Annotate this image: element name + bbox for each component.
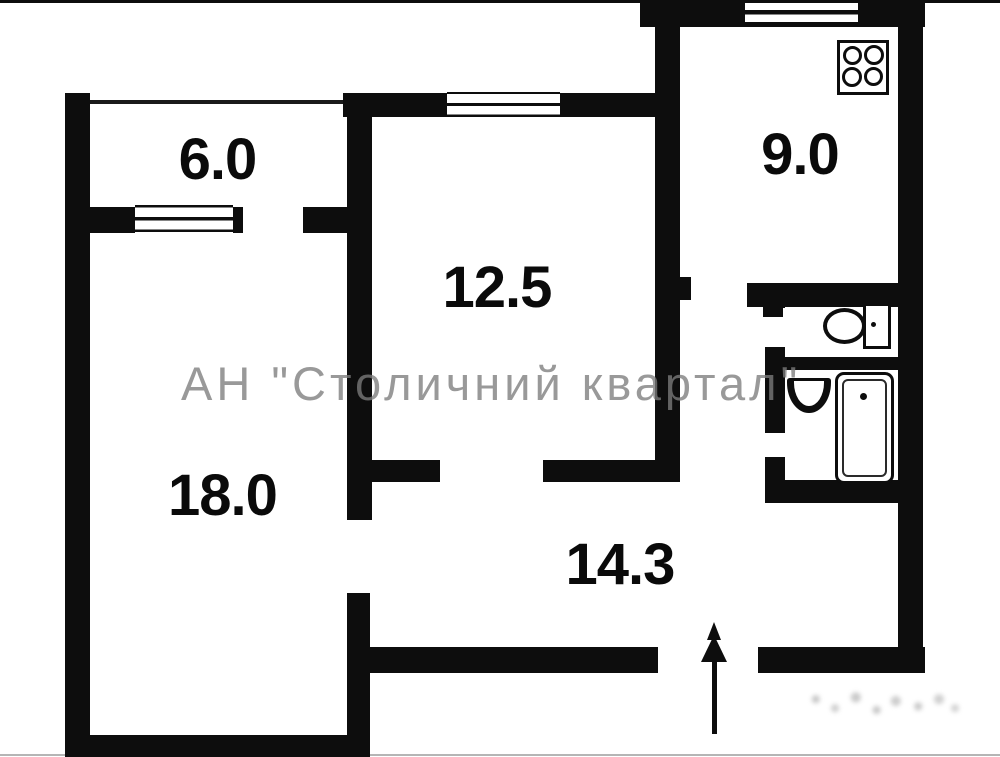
balcony-window-icon xyxy=(135,205,233,232)
wall-top-right-of-window xyxy=(560,93,667,117)
room-label-balcony: 6.0 xyxy=(150,131,285,189)
bathtub-icon xyxy=(835,372,894,484)
wall-balcony-bottom-left xyxy=(90,207,135,233)
agency-watermark: АН "Столичний квартал" xyxy=(181,360,841,407)
wall-kitchen-door-stub xyxy=(678,277,691,300)
floor-plan: 6.0 18.0 12.5 9.0 14.3 АН "Столичний ква… xyxy=(0,0,1000,757)
stove-icon xyxy=(837,40,889,95)
entrance-arrow xyxy=(698,622,730,734)
balcony-railing xyxy=(90,100,347,104)
wall-top-left-of-window xyxy=(343,93,447,117)
wall-balcony-bottom-mid xyxy=(233,207,243,233)
illegible-watermark xyxy=(803,683,963,719)
room-label-kitchen: 9.0 xyxy=(730,126,870,184)
kitchen-balcony-door-icon xyxy=(745,3,858,22)
room-label-bedroom: 12.5 xyxy=(402,259,592,317)
wall-hall-bottom-right xyxy=(758,647,925,673)
wall-center-vertical-lower xyxy=(347,593,370,757)
wall-bath-left-corner xyxy=(765,457,785,503)
wall-left-outer xyxy=(65,93,90,757)
wall-hall-top-right xyxy=(543,460,657,482)
wall-right-outer xyxy=(898,0,923,670)
wall-hall-top-left xyxy=(368,460,440,482)
toilet-icon xyxy=(823,303,893,351)
room-label-hallway: 14.3 xyxy=(525,536,715,594)
bedroom-window-icon xyxy=(447,92,560,117)
wall-kitchen-bottom-stub xyxy=(763,307,783,317)
wall-wc-left-stub xyxy=(765,295,785,308)
room-label-living-room: 18.0 xyxy=(130,467,315,525)
wall-center-vertical-upper xyxy=(347,93,372,520)
wall-livingroom-bottom xyxy=(65,735,370,757)
wall-hall-bottom-left xyxy=(368,647,658,673)
